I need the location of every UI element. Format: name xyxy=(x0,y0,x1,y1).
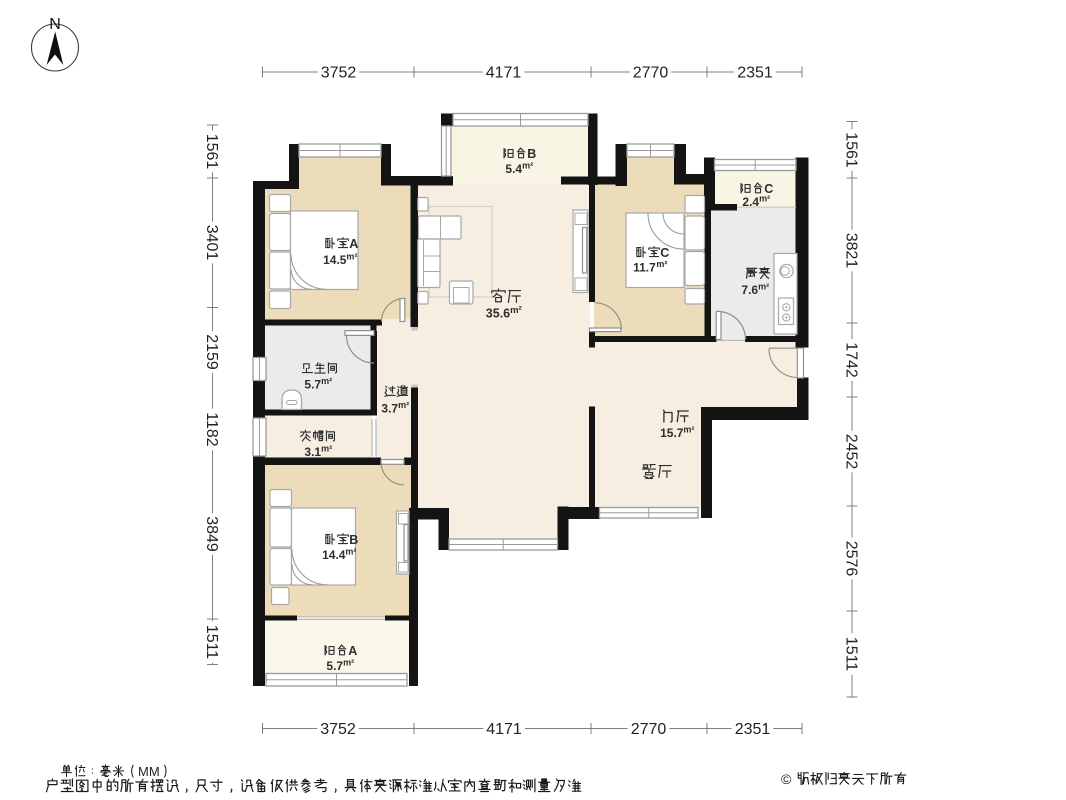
svg-text:5.4: 5.4 xyxy=(505,162,522,176)
svg-text:2.4: 2.4 xyxy=(742,195,759,209)
svg-text:2351: 2351 xyxy=(735,721,771,738)
svg-text:2576: 2576 xyxy=(843,541,860,577)
svg-text:5.7: 5.7 xyxy=(326,659,343,673)
svg-text:m²: m² xyxy=(321,376,332,386)
svg-text:3.1: 3.1 xyxy=(304,445,321,459)
svg-text:1511: 1511 xyxy=(203,625,220,660)
svg-text:1561: 1561 xyxy=(843,132,860,168)
svg-text:3821: 3821 xyxy=(843,233,860,269)
svg-text:3401: 3401 xyxy=(203,225,220,261)
svg-text:7.6: 7.6 xyxy=(741,283,758,297)
svg-text:4171: 4171 xyxy=(486,721,522,738)
svg-text:3.7: 3.7 xyxy=(381,401,398,415)
svg-text:m²: m² xyxy=(759,193,770,203)
svg-text:m²: m² xyxy=(398,400,409,410)
svg-text:15.7: 15.7 xyxy=(660,426,684,440)
svg-text:C: C xyxy=(660,246,669,260)
svg-text:2351: 2351 xyxy=(737,65,773,82)
svg-text:B: B xyxy=(527,147,536,161)
svg-text:m²: m² xyxy=(522,160,533,170)
svg-text:A: A xyxy=(348,644,357,658)
svg-text:m²: m² xyxy=(510,305,522,316)
svg-text:m²: m² xyxy=(758,282,769,292)
svg-text:2452: 2452 xyxy=(843,434,860,470)
svg-text:14.4: 14.4 xyxy=(322,548,346,562)
svg-text:m²: m² xyxy=(346,252,357,262)
svg-text:2770: 2770 xyxy=(633,65,669,82)
svg-text:m²: m² xyxy=(345,547,356,557)
svg-text:A: A xyxy=(349,237,358,251)
svg-text:B: B xyxy=(349,533,358,547)
svg-text:m²: m² xyxy=(683,425,694,435)
svg-text:5.7: 5.7 xyxy=(304,377,321,391)
svg-text:3752: 3752 xyxy=(320,721,356,738)
svg-text:1561: 1561 xyxy=(203,134,220,170)
svg-text:2770: 2770 xyxy=(631,721,667,738)
svg-text:2159: 2159 xyxy=(203,334,220,370)
svg-text:MM: MM xyxy=(138,764,160,779)
svg-text:m²: m² xyxy=(656,259,667,269)
svg-text:3849: 3849 xyxy=(203,516,220,552)
svg-text:1182: 1182 xyxy=(203,412,220,447)
svg-text:4171: 4171 xyxy=(486,65,522,82)
svg-text:11.7: 11.7 xyxy=(633,260,656,274)
svg-text:m²: m² xyxy=(321,444,332,454)
svg-text:m²: m² xyxy=(343,658,354,668)
svg-text:1511: 1511 xyxy=(843,637,860,672)
svg-text:14.5: 14.5 xyxy=(323,253,347,267)
svg-text:1742: 1742 xyxy=(843,342,860,378)
svg-text:N: N xyxy=(49,16,61,33)
svg-text:3752: 3752 xyxy=(321,65,357,82)
svg-text:35.6: 35.6 xyxy=(486,307,510,321)
svg-text:©: © xyxy=(781,771,792,787)
